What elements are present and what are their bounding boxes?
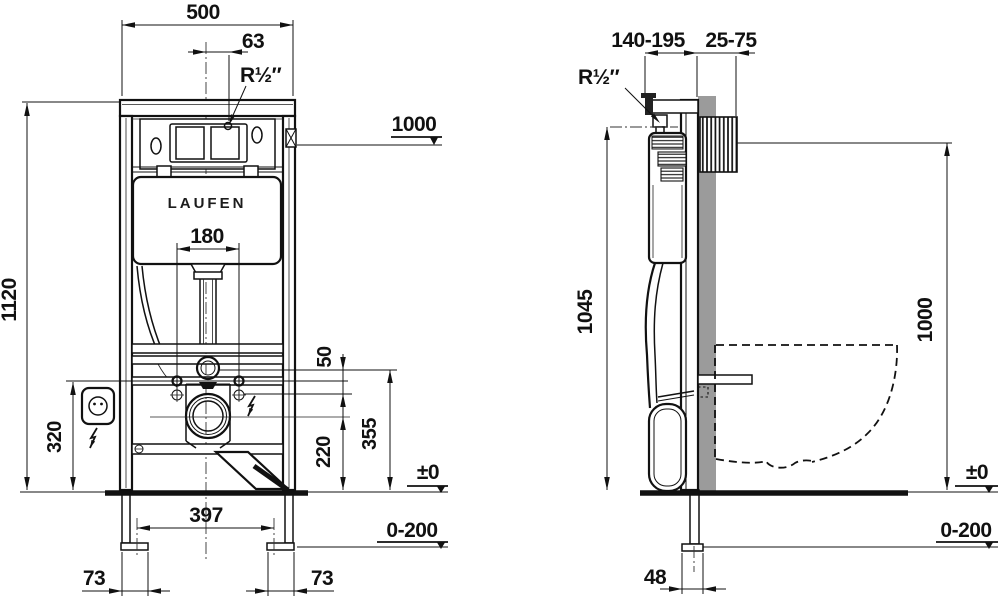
flush-button-left: [176, 127, 204, 159]
dim-width-top: 500: [186, 1, 220, 24]
wc-bowl-outline: [715, 345, 897, 468]
dim-supply-offset: 63: [242, 30, 264, 53]
front-right-foot: [267, 543, 294, 550]
fill-valve: [658, 152, 686, 166]
installation-frame-drawing: LAUFEN: [0, 0, 1000, 596]
dim-floor-adjust-front: 0-200: [386, 519, 437, 542]
dim-frame-depth: 140-195: [611, 29, 685, 52]
dim-floor-level-side: ±0: [966, 461, 988, 484]
front-view: LAUFEN: [0, 1, 448, 596]
front-dimensions: 500 63 R½″ 1000 1120: [0, 1, 448, 596]
dim-height-marker-side: 1000: [914, 298, 937, 343]
top-wall-bracket: [648, 100, 698, 113]
dim-plate-width: 180: [190, 225, 224, 248]
dim-socket-height: 320: [44, 421, 66, 453]
side-leg: [690, 490, 699, 544]
dim-foot-depth: 48: [644, 566, 667, 589]
dim-frame-height-side: 1045: [574, 289, 597, 335]
dim-supply-height: 355: [359, 418, 381, 450]
side-dimensions: 140-195 25-75 R½″ 1045 1000: [574, 29, 998, 594]
dim-water-connection-side: R½″: [578, 66, 620, 89]
dim-finish-depth: 25-75: [705, 29, 757, 52]
dim-foot-offset-left: 73: [83, 567, 105, 590]
side-view: 140-195 25-75 R½″ 1045 1000: [574, 29, 998, 594]
dim-floor-adjust-side: 0-200: [940, 519, 991, 542]
socket-outline: [82, 388, 114, 424]
dim-water-connection-front: R½″: [240, 64, 282, 87]
wc-fixing-rod: [698, 375, 752, 384]
lightning-icon: [90, 428, 97, 448]
cistern-front: LAUFEN: [133, 177, 281, 264]
flush-button-right: [211, 127, 239, 159]
lightning-icon: [248, 396, 255, 416]
technical-drawing-page: LAUFEN: [0, 0, 1000, 596]
dim-drain-height: 220: [313, 436, 335, 468]
dim-height-marker-front: 1000: [392, 113, 437, 136]
dim-foot-offset-right: 73: [311, 567, 333, 590]
power-socket-symbol: [82, 388, 114, 448]
brand-logo: LAUFEN: [168, 195, 247, 212]
front-left-foot: [121, 543, 148, 550]
dim-floor-level-front: ±0: [417, 461, 439, 484]
front-right-leg: [285, 490, 293, 543]
cistern-side: [649, 133, 686, 263]
dim-foot-span: 397: [189, 504, 223, 527]
flush-pipe-front: [137, 264, 225, 387]
dim-bolt-gap: 50: [314, 346, 336, 368]
flush-plate-wall-sleeve: [700, 117, 737, 172]
dim-frame-height-front: 1120: [0, 278, 21, 322]
flush-plate-assembly: [132, 119, 283, 177]
front-left-leg: [122, 490, 130, 543]
side-foot: [682, 544, 703, 551]
